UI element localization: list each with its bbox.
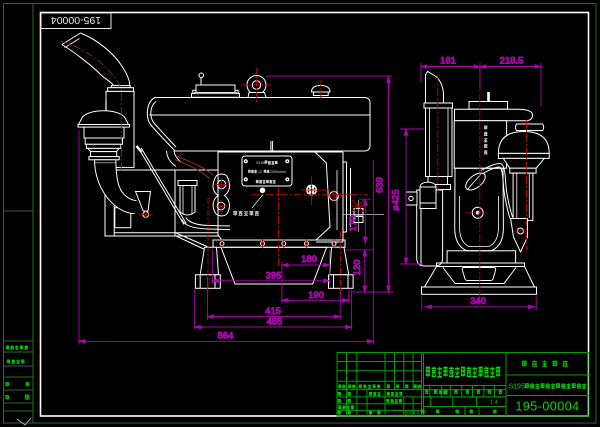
svg-text:180: 180 [301, 254, 317, 265]
svg-text:ø425: ø425 [391, 189, 402, 211]
svg-text:120: 120 [352, 260, 363, 276]
svg-text:395: 395 [266, 271, 282, 282]
svg-text:639: 639 [375, 177, 386, 193]
svg-text:2008.6: 2008.6 [405, 411, 420, 417]
svg-text:190: 190 [308, 290, 324, 301]
svg-text:195-00004: 195-00004 [51, 14, 101, 26]
svg-text:415: 415 [265, 306, 281, 317]
svg-text:S195: S195 [509, 384, 525, 391]
svg-text:340: 340 [470, 296, 486, 307]
svg-text:S195: S195 [256, 160, 266, 165]
svg-text:195-00004: 195-00004 [515, 400, 579, 414]
svg-text:181: 181 [440, 56, 456, 67]
svg-text:2000r/min: 2000r/min [270, 170, 286, 174]
svg-text:12: 12 [258, 170, 262, 174]
svg-text:485: 485 [266, 317, 282, 328]
svg-text:218.5: 218.5 [500, 56, 524, 67]
svg-text:1:4: 1:4 [490, 400, 498, 406]
svg-text:864: 864 [218, 331, 234, 342]
svg-text:170: 170 [348, 216, 359, 232]
